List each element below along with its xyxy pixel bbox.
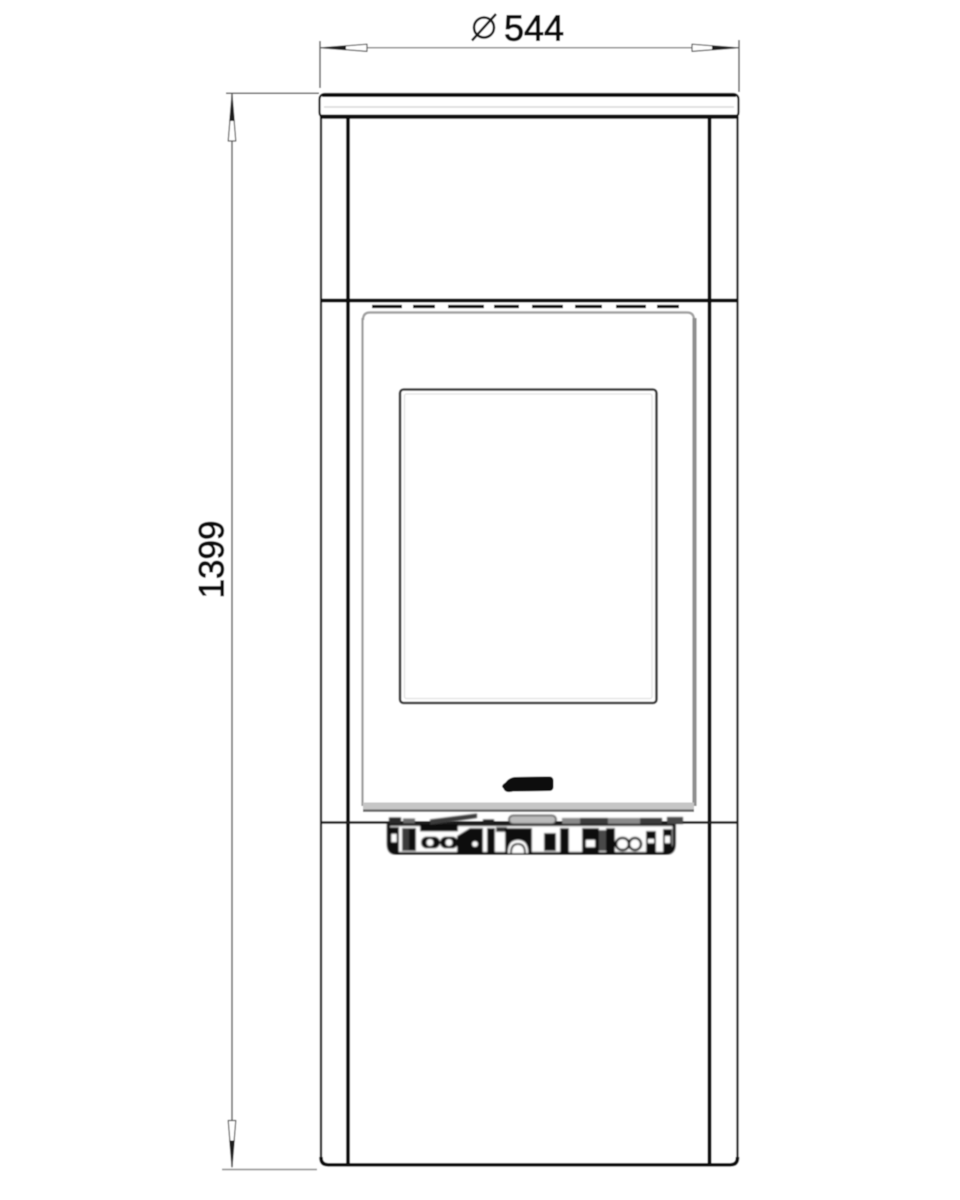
svg-text:544: 544: [504, 8, 564, 49]
svg-text:1399: 1399: [193, 521, 232, 599]
